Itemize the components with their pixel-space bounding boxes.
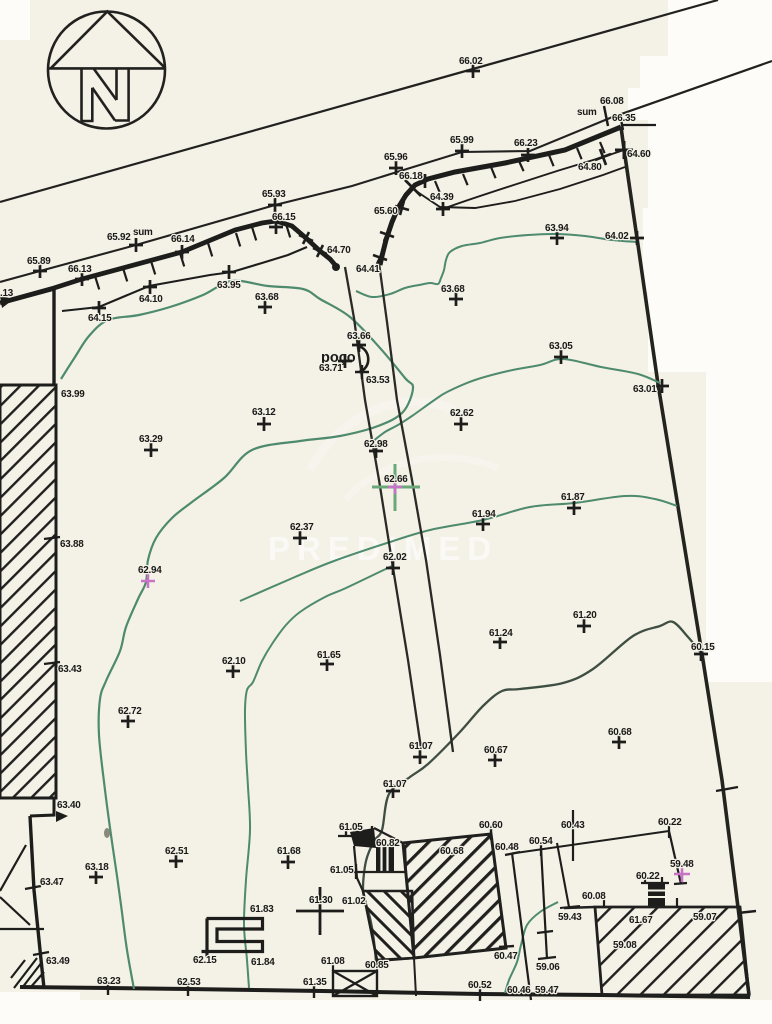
svg-text:62.37: 62.37 [290, 522, 314, 533]
svg-text:63.12: 63.12 [252, 407, 276, 418]
svg-text:64.41: 64.41 [356, 264, 380, 275]
svg-text:63.71: 63.71 [319, 363, 343, 374]
svg-text:63.23: 63.23 [97, 976, 121, 987]
svg-text:64.10: 64.10 [139, 294, 163, 305]
svg-text:60.46: 60.46 [507, 985, 531, 996]
svg-text:62.15: 62.15 [193, 955, 217, 966]
svg-text:60.47: 60.47 [494, 951, 518, 962]
svg-text:64.70: 64.70 [327, 245, 351, 256]
svg-text:60.22: 60.22 [658, 817, 682, 828]
svg-text:59.48: 59.48 [670, 859, 694, 870]
svg-text:64.39: 64.39 [430, 192, 454, 203]
svg-text:61.83: 61.83 [250, 904, 274, 915]
svg-text:62.72: 62.72 [118, 706, 142, 717]
svg-text:63.47: 63.47 [40, 877, 64, 888]
svg-text:61.20: 61.20 [573, 610, 597, 621]
svg-text:sum: sum [577, 107, 597, 118]
svg-text:63.53: 63.53 [366, 375, 390, 386]
svg-text:61.67: 61.67 [629, 915, 653, 926]
svg-text:63.05: 63.05 [549, 341, 573, 352]
svg-text:61.05: 61.05 [339, 822, 363, 833]
svg-text:65.89: 65.89 [27, 256, 51, 267]
svg-text:61.84: 61.84 [251, 957, 275, 968]
svg-text:61.08: 61.08 [321, 956, 345, 967]
svg-text:59.43: 59.43 [558, 912, 582, 923]
svg-text:63.40: 63.40 [57, 800, 81, 811]
svg-text:64.60: 64.60 [627, 149, 651, 160]
svg-text:65.93: 65.93 [262, 189, 286, 200]
svg-text:61.07: 61.07 [409, 741, 433, 752]
svg-text:66.14: 66.14 [171, 234, 195, 245]
svg-text:60.15: 60.15 [691, 642, 715, 653]
svg-text:64.15: 64.15 [88, 313, 112, 324]
svg-text:62.94: 62.94 [138, 565, 162, 576]
svg-text:63.88: 63.88 [60, 539, 84, 550]
svg-text:63.94: 63.94 [545, 223, 569, 234]
svg-text:62.62: 62.62 [450, 408, 474, 419]
svg-text:63.29: 63.29 [139, 434, 163, 445]
svg-text:62.02: 62.02 [383, 552, 407, 563]
svg-text:60.52: 60.52 [468, 980, 492, 991]
svg-text:65.92: 65.92 [107, 232, 131, 243]
svg-text:62.66: 62.66 [384, 474, 408, 485]
svg-text:59.47: 59.47 [535, 985, 559, 996]
svg-text:66.23: 66.23 [514, 138, 538, 149]
svg-text:63.68: 63.68 [441, 284, 465, 295]
svg-text:61.87: 61.87 [561, 492, 585, 503]
svg-text:60.60: 60.60 [479, 820, 503, 831]
svg-text:59.08: 59.08 [613, 940, 637, 951]
svg-text:sum: sum [133, 227, 153, 238]
svg-text:60.68: 60.68 [440, 846, 464, 857]
svg-text:63.99: 63.99 [61, 389, 85, 400]
svg-text:60.08: 60.08 [582, 891, 606, 902]
svg-text:62.98: 62.98 [364, 439, 388, 450]
svg-text:65.60: 65.60 [374, 206, 398, 217]
svg-text:61.07: 61.07 [383, 779, 407, 790]
svg-text:61.02: 61.02 [342, 896, 366, 907]
svg-text:61.65: 61.65 [317, 650, 341, 661]
svg-text:65.99: 65.99 [450, 135, 474, 146]
svg-text:60.67: 60.67 [484, 745, 508, 756]
svg-text:63.01: 63.01 [633, 384, 657, 395]
svg-text:61.35: 61.35 [303, 977, 327, 988]
svg-text:60.22: 60.22 [636, 871, 660, 882]
svg-text:60.48: 60.48 [495, 842, 519, 853]
svg-text:60.85: 60.85 [365, 960, 389, 971]
svg-text:64.02: 64.02 [605, 231, 629, 242]
svg-text:59.07: 59.07 [693, 912, 717, 923]
svg-text:63.43: 63.43 [58, 664, 82, 675]
svg-text:64.80: 64.80 [578, 162, 602, 173]
svg-text:62.10: 62.10 [222, 656, 246, 667]
svg-text:60.54: 60.54 [529, 836, 553, 847]
svg-text:62.53: 62.53 [177, 977, 201, 988]
svg-text:66.13: 66.13 [68, 264, 92, 275]
svg-text:61.94: 61.94 [472, 509, 496, 520]
svg-text:66.18: 66.18 [399, 171, 423, 182]
svg-text:60.43: 60.43 [561, 820, 585, 831]
svg-text:60.82: 60.82 [376, 838, 400, 849]
svg-text:61.30: 61.30 [309, 895, 333, 906]
svg-text:66.15: 66.15 [272, 212, 296, 223]
svg-text:65.96: 65.96 [384, 152, 408, 163]
svg-text:63.95: 63.95 [217, 280, 241, 291]
svg-text:63.49: 63.49 [46, 956, 70, 967]
svg-text:60.68: 60.68 [608, 727, 632, 738]
svg-text:62.51: 62.51 [165, 846, 189, 857]
svg-text:63.68: 63.68 [255, 292, 279, 303]
svg-text:63.18: 63.18 [85, 862, 109, 873]
svg-text:61.05: 61.05 [330, 865, 354, 876]
svg-text:63.66: 63.66 [347, 331, 371, 342]
svg-text:66.02: 66.02 [459, 56, 483, 67]
svg-text:.13: .13 [0, 288, 14, 299]
svg-text:59.06: 59.06 [536, 962, 560, 973]
svg-text:66.35: 66.35 [612, 113, 636, 124]
svg-text:66.08: 66.08 [600, 96, 624, 107]
svg-text:61.24: 61.24 [489, 628, 513, 639]
svg-text:61.68: 61.68 [277, 846, 301, 857]
